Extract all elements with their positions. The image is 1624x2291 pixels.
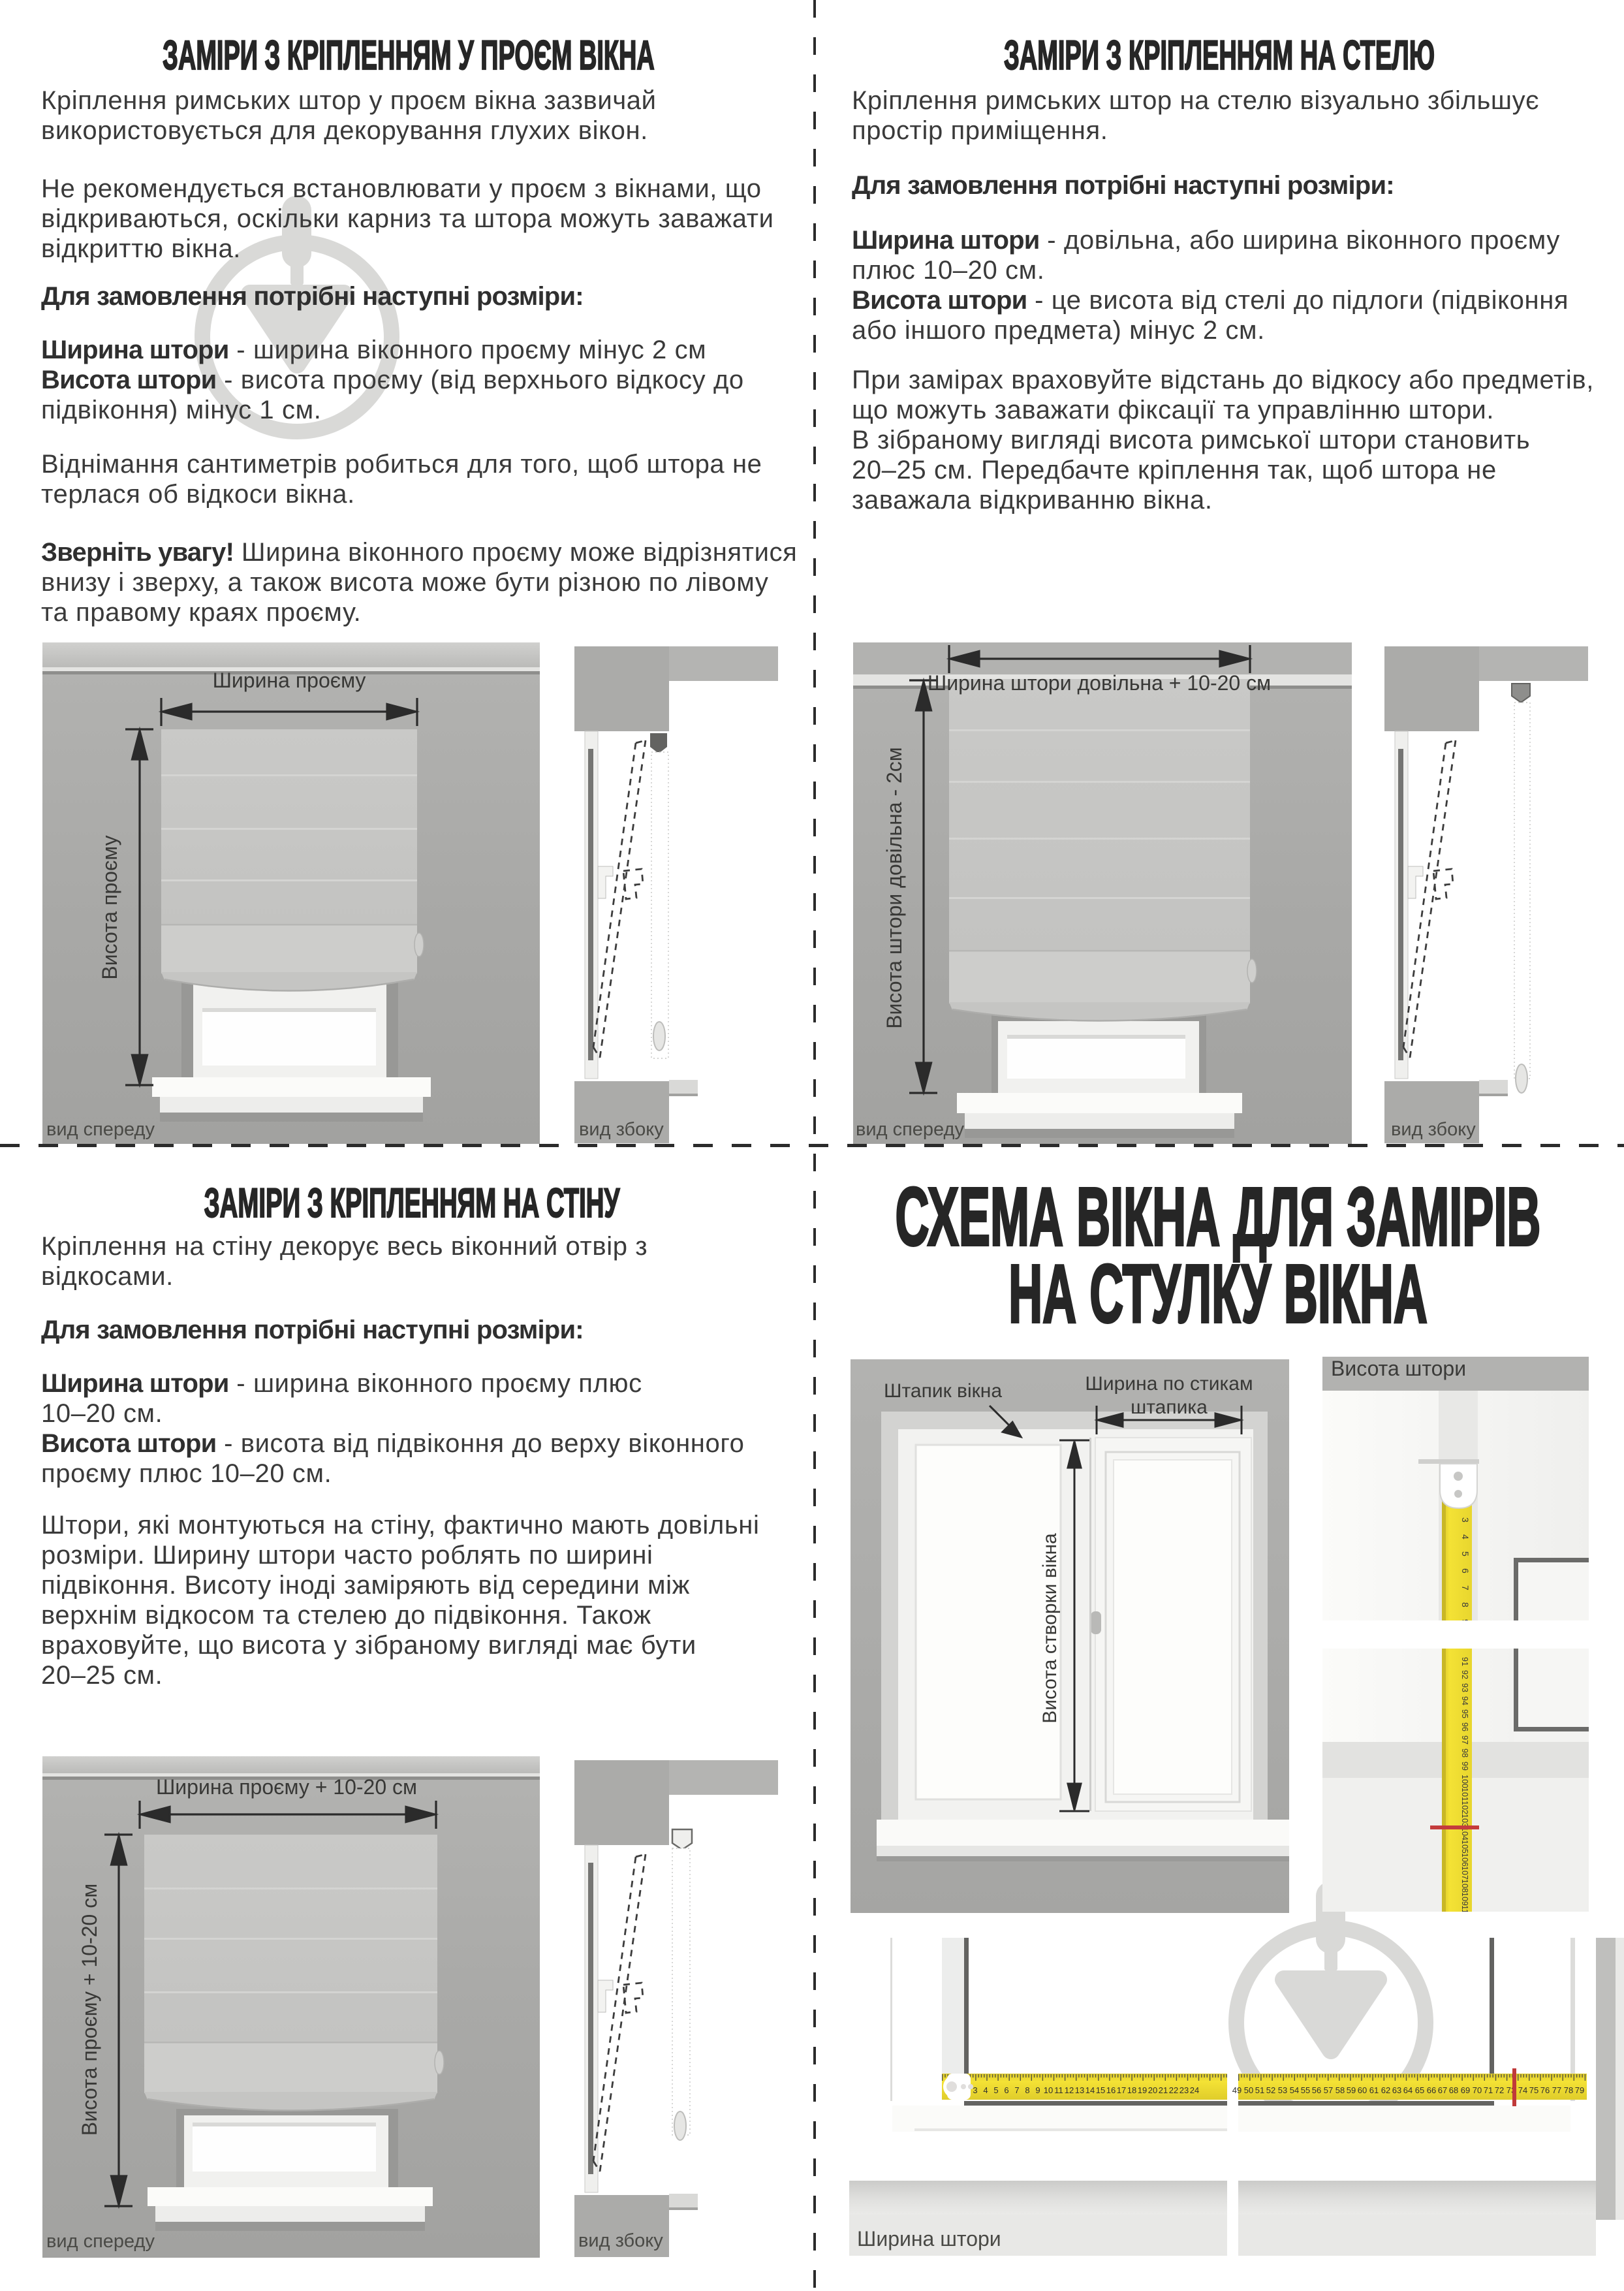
svg-text:18: 18 bbox=[1127, 2085, 1136, 2095]
svg-text:69: 69 bbox=[1461, 2085, 1470, 2095]
svg-text:63: 63 bbox=[1392, 2085, 1401, 2095]
svg-text:19: 19 bbox=[1138, 2085, 1147, 2095]
svg-text:3: 3 bbox=[973, 2085, 977, 2095]
svg-text:94: 94 bbox=[1460, 1696, 1469, 1705]
svg-text:56: 56 bbox=[1312, 2085, 1321, 2095]
svg-text:93: 93 bbox=[1460, 1683, 1469, 1692]
svg-text:58: 58 bbox=[1335, 2085, 1345, 2095]
svg-text:7: 7 bbox=[1014, 2085, 1019, 2095]
svg-text:49: 49 bbox=[1232, 2085, 1241, 2095]
svg-text:7: 7 bbox=[1460, 1585, 1471, 1590]
svg-text:106: 106 bbox=[1460, 1853, 1469, 1867]
svg-text:14: 14 bbox=[1085, 2085, 1095, 2095]
svg-text:77: 77 bbox=[1552, 2085, 1561, 2095]
svg-text:8: 8 bbox=[1025, 2085, 1029, 2095]
svg-text:8: 8 bbox=[1460, 1602, 1471, 1607]
svg-text:62: 62 bbox=[1381, 2085, 1390, 2095]
svg-text:16: 16 bbox=[1106, 2085, 1116, 2095]
svg-text:60: 60 bbox=[1358, 2085, 1367, 2095]
svg-text:64: 64 bbox=[1403, 2085, 1413, 2095]
svg-text:6: 6 bbox=[1460, 1568, 1471, 1573]
svg-text:92: 92 bbox=[1460, 1670, 1469, 1679]
svg-text:57: 57 bbox=[1324, 2085, 1333, 2095]
svg-text:72: 72 bbox=[1495, 2085, 1504, 2095]
svg-text:15: 15 bbox=[1096, 2085, 1105, 2095]
svg-text:96: 96 bbox=[1460, 1722, 1469, 1731]
svg-text:11: 11 bbox=[1054, 2085, 1063, 2095]
svg-text:76: 76 bbox=[1540, 2085, 1550, 2095]
svg-text:110: 110 bbox=[1460, 1905, 1469, 1912]
svg-text:21: 21 bbox=[1159, 2085, 1168, 2095]
svg-text:101: 101 bbox=[1460, 1788, 1469, 1801]
svg-text:13: 13 bbox=[1075, 2085, 1084, 2095]
svg-text:24: 24 bbox=[1190, 2085, 1199, 2095]
svg-text:65: 65 bbox=[1415, 2085, 1424, 2095]
svg-text:50: 50 bbox=[1244, 2085, 1253, 2095]
svg-text:61: 61 bbox=[1369, 2085, 1379, 2095]
svg-text:54: 54 bbox=[1290, 2085, 1299, 2095]
svg-text:53: 53 bbox=[1278, 2085, 1287, 2095]
svg-text:100: 100 bbox=[1460, 1775, 1469, 1788]
svg-text:9: 9 bbox=[1035, 2085, 1040, 2095]
svg-text:4: 4 bbox=[1460, 1534, 1471, 1540]
svg-text:70: 70 bbox=[1473, 2085, 1482, 2095]
svg-text:103: 103 bbox=[1460, 1814, 1469, 1827]
svg-text:97: 97 bbox=[1460, 1735, 1469, 1745]
svg-text:109: 109 bbox=[1460, 1892, 1469, 1906]
svg-text:74: 74 bbox=[1518, 2085, 1527, 2095]
svg-text:22: 22 bbox=[1169, 2085, 1178, 2095]
svg-text:51: 51 bbox=[1255, 2085, 1264, 2095]
svg-text:17: 17 bbox=[1117, 2085, 1126, 2095]
svg-text:10: 10 bbox=[1044, 2085, 1053, 2095]
svg-text:5: 5 bbox=[993, 2085, 998, 2095]
svg-text:23: 23 bbox=[1179, 2085, 1189, 2095]
svg-text:52: 52 bbox=[1266, 2085, 1275, 2095]
svg-text:59: 59 bbox=[1347, 2085, 1356, 2095]
svg-text:12: 12 bbox=[1065, 2085, 1074, 2095]
svg-text:79: 79 bbox=[1575, 2085, 1584, 2095]
svg-text:68: 68 bbox=[1449, 2085, 1458, 2095]
svg-text:108: 108 bbox=[1460, 1879, 1469, 1893]
svg-text:55: 55 bbox=[1301, 2085, 1310, 2095]
svg-text:95: 95 bbox=[1460, 1709, 1469, 1718]
svg-text:105: 105 bbox=[1460, 1840, 1469, 1854]
svg-text:4: 4 bbox=[983, 2085, 988, 2095]
svg-text:5: 5 bbox=[1460, 1551, 1471, 1556]
svg-text:6: 6 bbox=[1004, 2085, 1008, 2095]
svg-text:102: 102 bbox=[1460, 1801, 1469, 1814]
svg-text:67: 67 bbox=[1438, 2085, 1447, 2095]
svg-text:99: 99 bbox=[1460, 1762, 1469, 1771]
svg-text:107: 107 bbox=[1460, 1866, 1469, 1880]
svg-text:71: 71 bbox=[1484, 2085, 1493, 2095]
svg-text:91: 91 bbox=[1460, 1657, 1469, 1666]
svg-text:75: 75 bbox=[1529, 2085, 1538, 2095]
svg-text:3: 3 bbox=[1460, 1517, 1471, 1523]
svg-text:78: 78 bbox=[1564, 2085, 1573, 2095]
svg-text:66: 66 bbox=[1427, 2085, 1436, 2095]
svg-text:20: 20 bbox=[1148, 2085, 1157, 2095]
svg-text:98: 98 bbox=[1460, 1748, 1469, 1758]
